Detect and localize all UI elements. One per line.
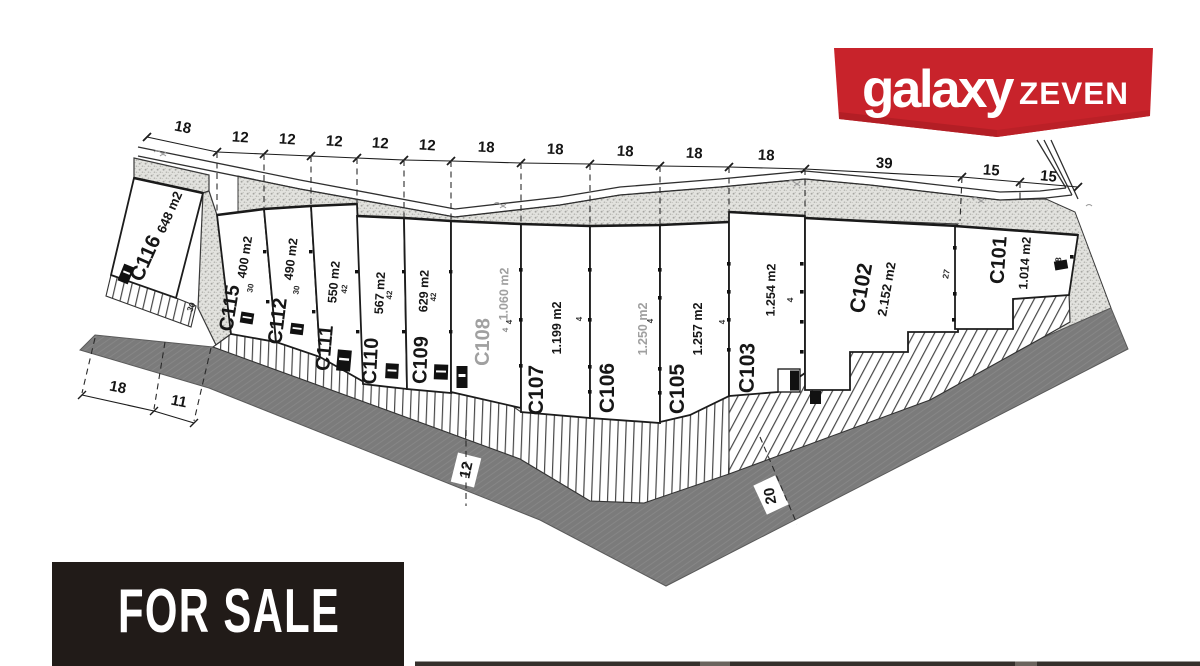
svg-text:20: 20 — [761, 486, 781, 505]
svg-text:galaxy: galaxy — [862, 60, 1015, 119]
svg-text:629 m2: 629 m2 — [416, 270, 431, 313]
svg-text:12: 12 — [325, 132, 343, 150]
svg-text:1.250 m2: 1.250 m2 — [636, 303, 650, 356]
svg-text:27: 27 — [940, 268, 952, 279]
svg-text:C109: C109 — [409, 336, 433, 385]
svg-text:4: 4 — [501, 327, 510, 332]
svg-text:C106: C106 — [596, 363, 619, 413]
svg-text:12: 12 — [278, 130, 296, 148]
svg-text:18: 18 — [757, 147, 775, 165]
svg-text:18: 18 — [477, 139, 495, 157]
svg-text:1.060 m2: 1.060 m2 — [497, 267, 512, 320]
svg-text:12: 12 — [371, 134, 389, 152]
svg-text:C107: C107 — [525, 365, 548, 415]
svg-text:39: 39 — [875, 155, 893, 173]
svg-text:12: 12 — [231, 128, 249, 146]
svg-text:C103: C103 — [736, 343, 760, 394]
svg-text:4: 4 — [505, 319, 514, 324]
svg-text:12: 12 — [418, 136, 436, 154]
svg-text:42: 42 — [385, 290, 394, 300]
svg-text:1.199 m2: 1.199 m2 — [550, 302, 564, 355]
svg-text:18: 18 — [173, 118, 193, 138]
svg-text:42: 42 — [429, 292, 438, 302]
svg-text:18: 18 — [546, 141, 564, 159]
svg-text:15: 15 — [1039, 167, 1057, 186]
svg-text:18: 18 — [616, 143, 634, 161]
svg-text:ZEVEN: ZEVEN — [1019, 75, 1129, 111]
svg-text:C108: C108 — [472, 318, 495, 366]
svg-text:C110: C110 — [359, 337, 383, 385]
svg-text:1.254 m2: 1.254 m2 — [764, 263, 779, 316]
svg-text:4: 4 — [718, 319, 727, 324]
svg-text:18: 18 — [685, 145, 703, 163]
svg-text:FOR SALE: FOR SALE — [118, 577, 340, 646]
svg-text:30: 30 — [291, 285, 301, 295]
svg-text:1.257 m2: 1.257 m2 — [691, 303, 705, 356]
svg-text:18: 18 — [108, 378, 128, 398]
svg-text:4: 4 — [785, 297, 795, 302]
svg-text:4: 4 — [575, 316, 584, 321]
svg-text:42: 42 — [340, 284, 350, 294]
svg-text:11: 11 — [169, 392, 188, 412]
svg-text:C101: C101 — [986, 235, 1011, 284]
svg-text:15: 15 — [982, 161, 1000, 179]
svg-text:C105: C105 — [666, 364, 689, 415]
svg-text:4: 4 — [646, 318, 655, 323]
svg-text:C111: C111 — [312, 324, 338, 371]
